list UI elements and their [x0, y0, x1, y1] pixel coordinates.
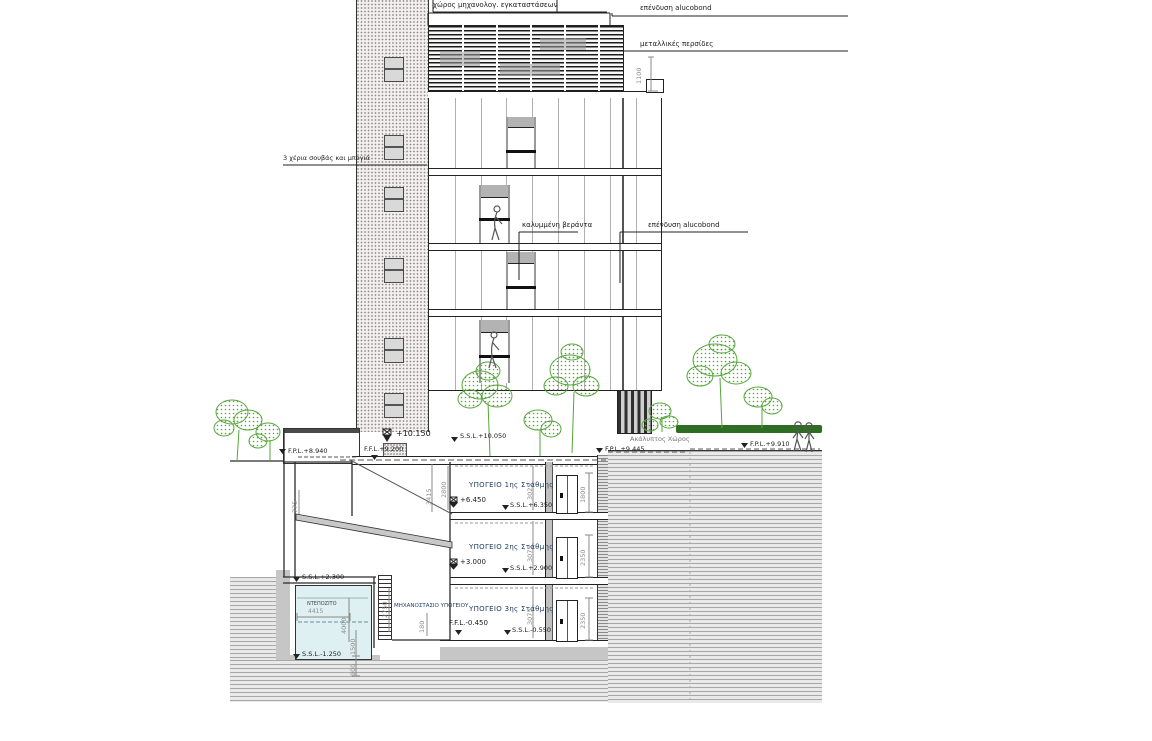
level-b2-ffl: +3.000: [460, 559, 486, 566]
label-roof-space: χώρος μηχανολογ. εγκαταστάσεων: [433, 2, 557, 9]
dim-tank-depth: 4000: [341, 617, 348, 634]
level-b3-ffl: F.F.L.-0.450: [449, 620, 488, 627]
dim-ramp: 3415: [426, 488, 433, 505]
label-alucobond-top: επένδυση alucobond: [640, 5, 712, 12]
dim-tank-lower: 1500: [350, 638, 357, 655]
dim-b1-left: 2800: [441, 481, 448, 498]
label-metal-louvers: μεταλλικές περσίδες: [640, 41, 713, 48]
dim-ladder: 2750: [382, 601, 389, 618]
dashed-level-lines: [298, 449, 820, 700]
label-basement2: ΥΠΟΓΕΙΟ 2ης Στάθμης: [469, 544, 554, 551]
ramp-line: [350, 460, 452, 514]
dim-b2-mid: 3075: [527, 545, 534, 562]
level-fpl-8940: F.P.L.+8.940: [288, 448, 327, 455]
label-plaster: 3 χέρια σουβάς και μπογιά: [283, 155, 370, 162]
dim-door2: 2350: [580, 549, 587, 566]
level-ffl-9200: F.F.L.+9.200: [364, 446, 403, 453]
label-veranda: καλυμμένη βεράντα: [522, 222, 592, 229]
ramp-slab: [296, 514, 452, 548]
architectural-section-drawing: χώρος μηχανολογ. εγκαταστάσεων επένδυση …: [0, 0, 1152, 741]
level-fpl-9910: F.P.L.+9.910: [750, 441, 789, 448]
level-b1-ssl: S.S.L.+6.350: [510, 502, 552, 509]
linework-overlay: [0, 0, 1152, 741]
dim-louver-height: 1100: [636, 67, 643, 84]
level-b2-ssl: S.S.L.+2.900: [510, 565, 552, 572]
label-alucobond-mid: επένδυση alucobond: [648, 222, 720, 229]
dim-ramp-left: 775: [292, 501, 299, 513]
level-b3-ssl: S.S.L.-0.550: [512, 627, 551, 634]
level-ramp-ssl: S.S.L.+2.300: [302, 574, 344, 581]
level-street-ffl: +10.150: [396, 430, 431, 438]
trees: [214, 335, 782, 461]
dim-tank-base: 900: [350, 664, 357, 676]
label-open-space: Ακάλυπτος Χώρος: [630, 436, 690, 443]
dim-door1: 1800: [580, 486, 587, 503]
label-machine-room: ΜΗΧΑΝΟΣΤΑΣΙΟ ΥΠΟΓΕΙΟΥ: [394, 604, 468, 610]
label-water-tank: ΝΤΕΠΟΖΙΤΟ: [307, 602, 337, 607]
dim-door3: 2350: [580, 612, 587, 629]
dim-b3-mid: 3075: [527, 608, 534, 625]
level-street-ssl: S.S.L.+10.050: [460, 433, 506, 440]
level-fpl-9445: F.P.L.+9.445: [605, 446, 644, 453]
label-basement1: ΥΠΟΓΕΙΟ 1ης Στάθμης: [469, 482, 554, 489]
level-tank-ssl: S.S.L.-1.250: [302, 651, 341, 658]
dim-b1-mid: 3025: [527, 483, 534, 500]
label-basement3: ΥΠΟΓΕΙΟ 3ης Στάθμης: [469, 606, 554, 613]
level-b1-ffl: +6.450: [460, 497, 486, 504]
dim-tank-width: 4415: [308, 609, 323, 615]
dim-mech: 180: [419, 621, 426, 633]
leader-lines: [283, 0, 848, 283]
